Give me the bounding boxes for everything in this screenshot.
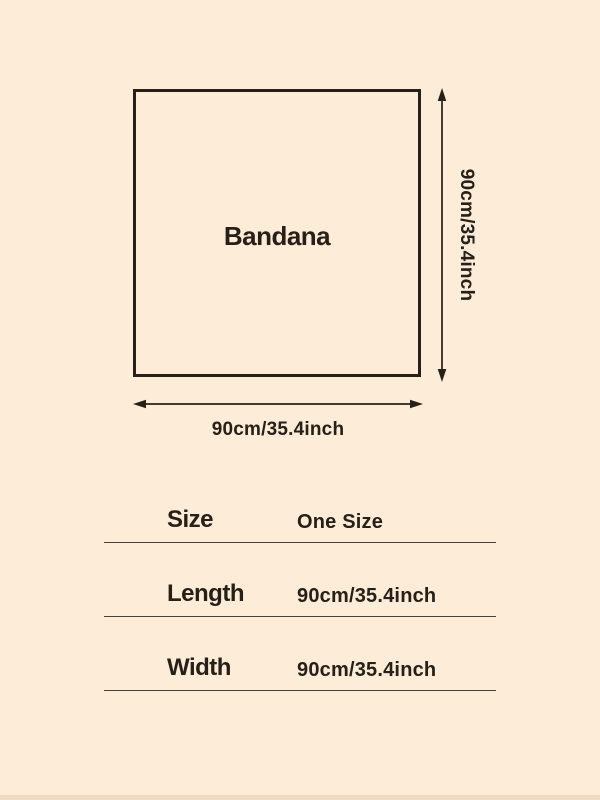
size-chart-image: Bandana 90cm/35.4inch 90cm/35.4inch Size… (0, 0, 600, 800)
height-arrow (438, 88, 447, 382)
product-label: Bandana (224, 221, 330, 252)
product-outline-square: Bandana (133, 89, 421, 377)
table-row: Length 90cm/35.4inch (104, 543, 496, 617)
row-value: 90cm/35.4inch (297, 586, 436, 606)
width-arrow (133, 400, 423, 409)
height-dimension-label: 90cm/35.4inch (455, 169, 477, 302)
width-dimension-label: 90cm/35.4inch (212, 419, 345, 441)
size-table: Size One Size Length 90cm/35.4inch Width… (104, 497, 496, 691)
row-label: Size (167, 508, 297, 532)
table-row: Size One Size (104, 497, 496, 543)
row-label: Width (167, 656, 297, 680)
row-value: 90cm/35.4inch (297, 660, 436, 680)
row-label: Length (167, 582, 297, 606)
table-row: Width 90cm/35.4inch (104, 617, 496, 691)
row-value: One Size (297, 512, 383, 532)
bottom-edge-shadow (0, 795, 600, 800)
